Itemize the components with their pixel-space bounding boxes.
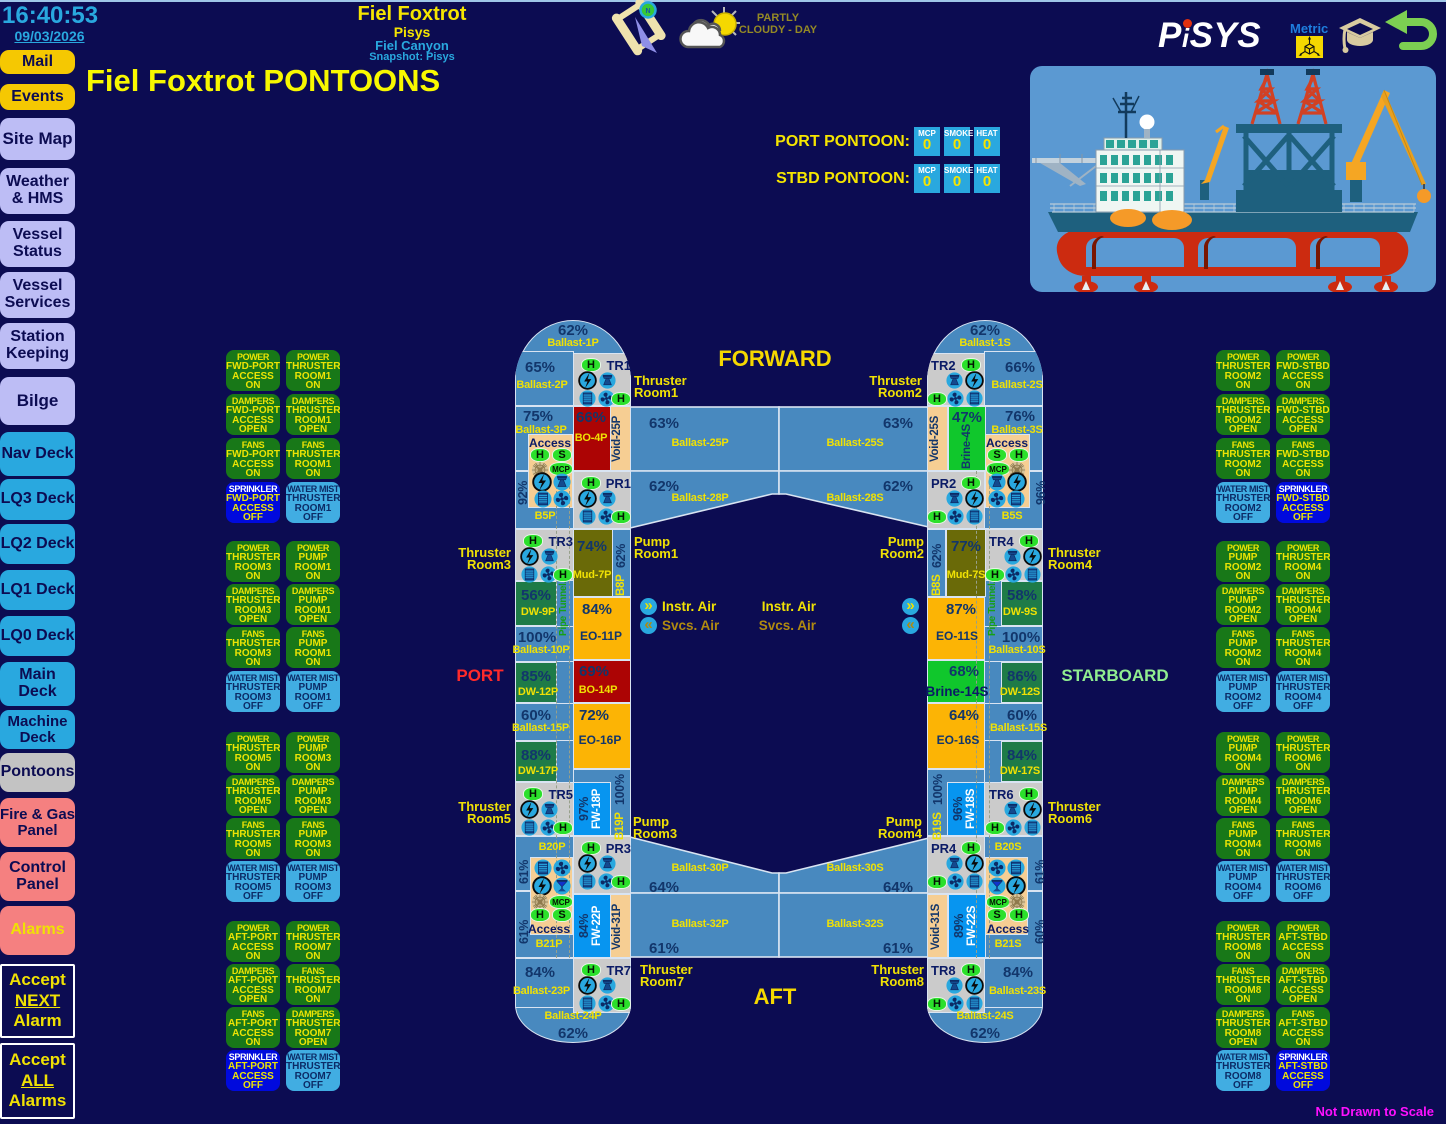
svg-text:N: N [645,8,650,15]
